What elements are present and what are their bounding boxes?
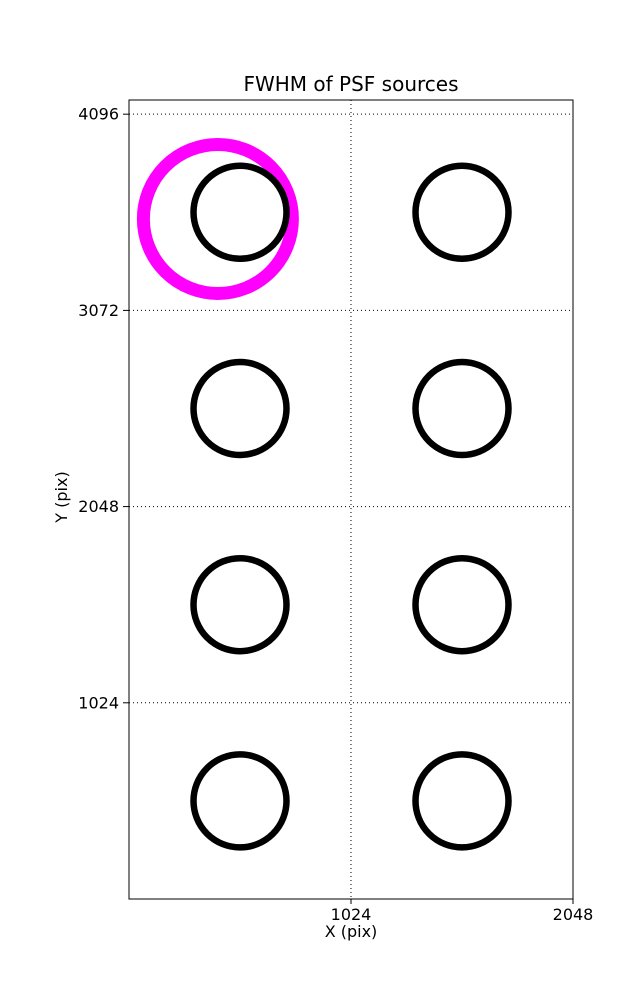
y-tick-label-1024: 1024 (78, 693, 119, 712)
selected-source-highlight-marker-1 (143, 144, 292, 293)
psf-source-marker-8 (416, 754, 509, 847)
psf-source-marker-1 (194, 166, 287, 259)
psf-source-marker-3 (194, 362, 287, 455)
psf-source-marker-4 (416, 362, 509, 455)
y-tick-label-3072: 3072 (78, 301, 119, 320)
chart-svg: 102420483072409610242048 (0, 0, 637, 1000)
y-axis-label: Y (pix) (54, 471, 70, 522)
psf-source-marker-2 (416, 166, 509, 259)
x-tick-label-2048: 2048 (553, 905, 594, 924)
psf-source-marker-5 (194, 558, 287, 651)
psf-source-marker-7 (194, 754, 287, 847)
chart-title: FWHM of PSF sources (129, 74, 573, 94)
x-axis-label: X (pix) (129, 924, 573, 940)
figure-canvas: 102420483072409610242048 FWHM of PSF sou… (0, 0, 637, 1000)
psf-source-marker-6 (416, 558, 509, 651)
y-tick-label-2048: 2048 (78, 497, 119, 516)
y-tick-label-4096: 4096 (78, 105, 119, 124)
